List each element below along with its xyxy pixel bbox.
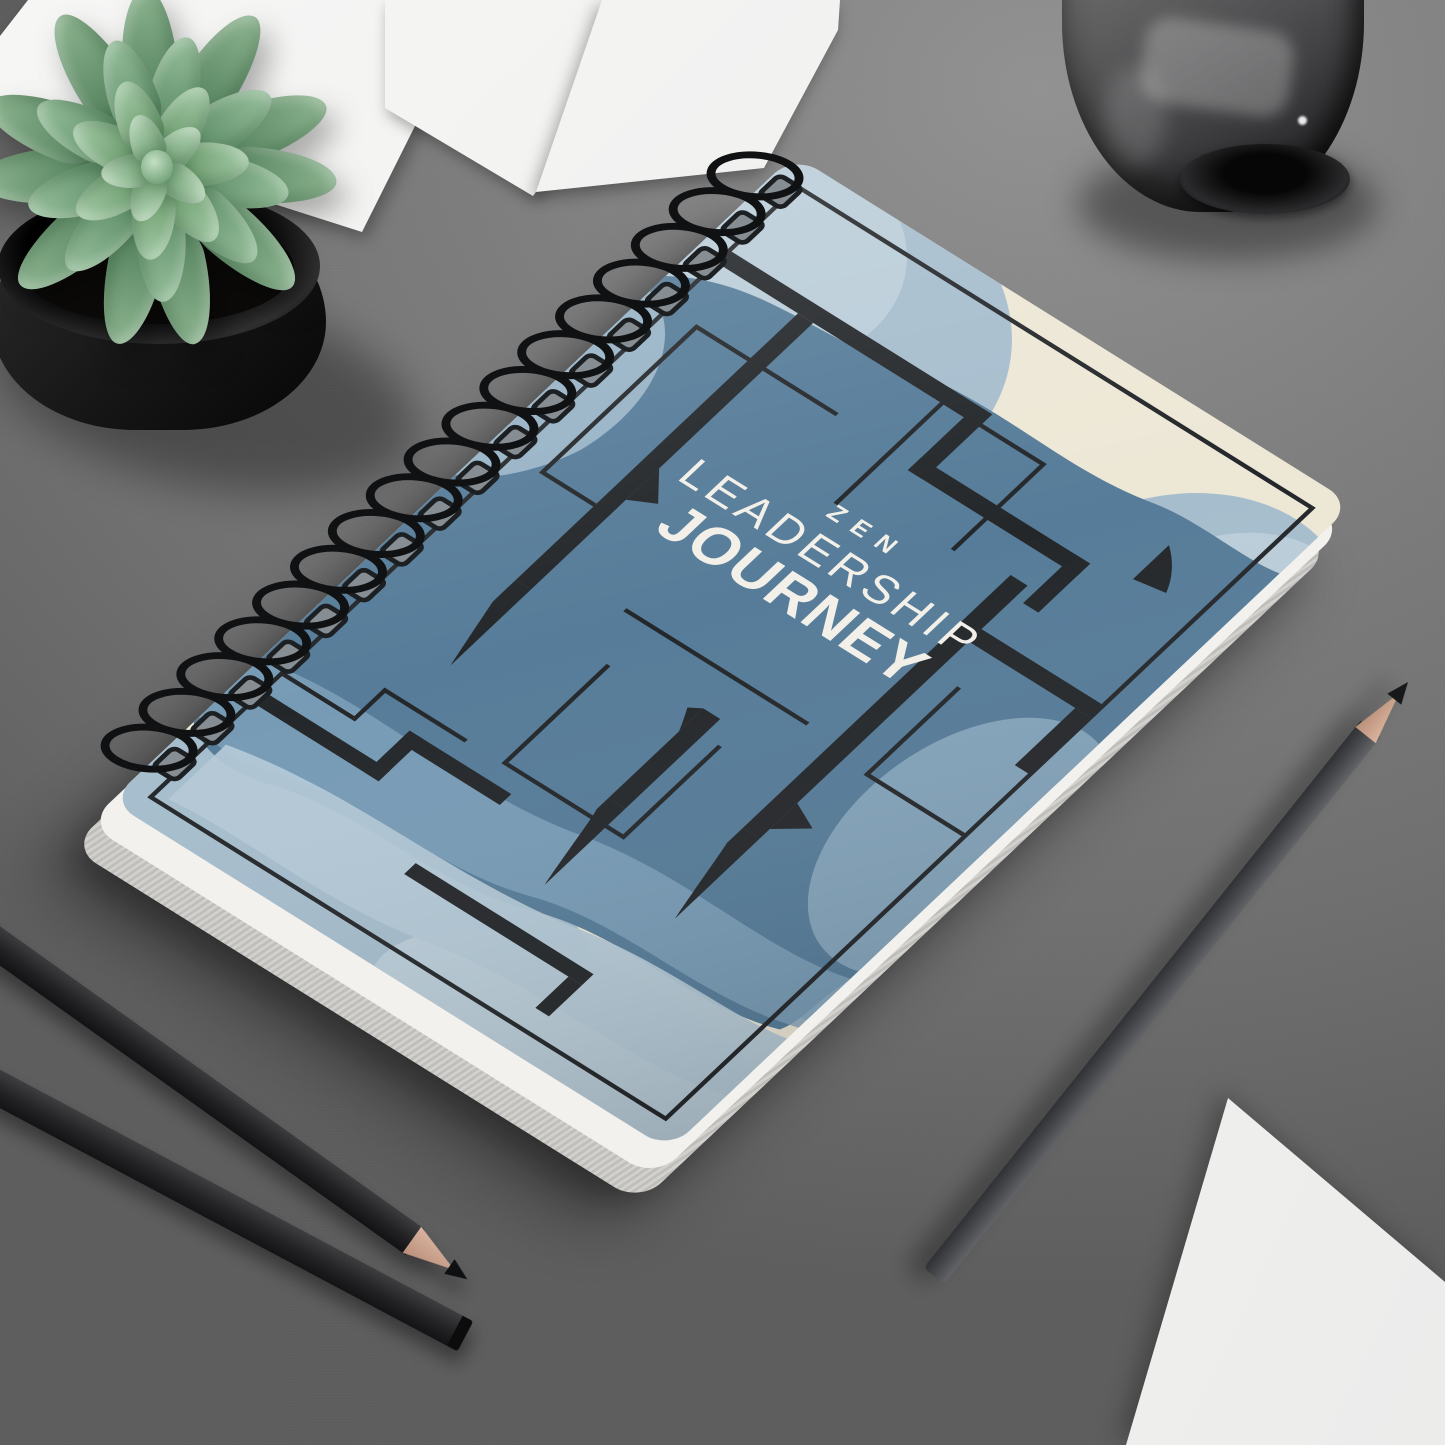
glass-highlight	[1104, 66, 1166, 168]
succulent-bud	[141, 150, 173, 184]
desk-scene: ZEN LEADERSHIP JOURNEY	[0, 0, 1445, 1445]
drinking-glass	[1062, 0, 1364, 224]
glass-base	[1180, 144, 1350, 214]
succulent-plant	[0, 0, 420, 470]
glass-sparkle	[1298, 116, 1307, 125]
